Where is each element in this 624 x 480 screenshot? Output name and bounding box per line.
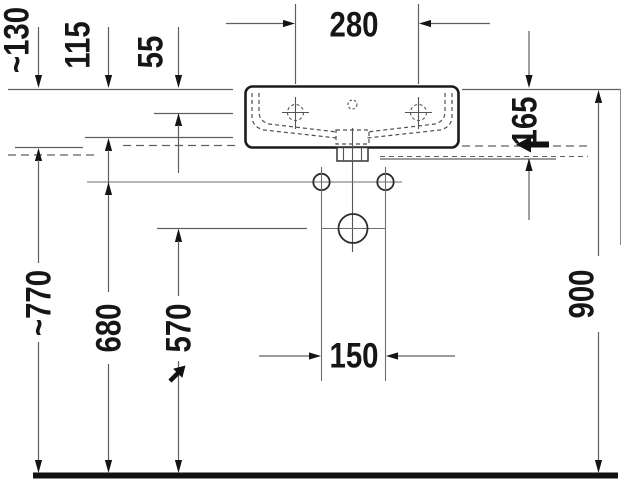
arrowhead bbox=[175, 460, 182, 473]
arrowhead bbox=[105, 75, 112, 88]
arrowhead bbox=[283, 20, 295, 27]
adjustment-direction-ne-arrow bbox=[165, 361, 190, 386]
arrowhead bbox=[35, 460, 42, 473]
label-280: 280 bbox=[329, 5, 378, 44]
waste-connection bbox=[157, 214, 385, 243]
arrowhead bbox=[595, 90, 602, 103]
dimension-570 bbox=[175, 113, 182, 473]
drawing-canvas: ~130 115 55 280 165 900 ~770 680 570 150 bbox=[0, 0, 624, 480]
arrowhead bbox=[35, 75, 42, 88]
arrowhead bbox=[525, 158, 532, 171]
arrowhead bbox=[525, 75, 532, 88]
floor-line bbox=[33, 473, 618, 479]
label-900: 900 bbox=[562, 269, 601, 318]
label-570: 570 bbox=[159, 303, 198, 352]
arrowhead bbox=[105, 182, 112, 195]
arrowhead bbox=[105, 138, 112, 151]
arrowhead bbox=[175, 229, 182, 243]
arrowhead bbox=[386, 352, 398, 359]
label-165: 165 bbox=[505, 96, 544, 145]
left-reference-lines bbox=[8, 114, 236, 156]
label-55: 55 bbox=[131, 36, 170, 69]
label-770: ~770 bbox=[19, 270, 58, 336]
label-150: 150 bbox=[329, 336, 378, 375]
arrowhead bbox=[309, 352, 321, 359]
arrowhead bbox=[105, 460, 112, 473]
arrowhead bbox=[595, 460, 602, 473]
label-130: ~130 bbox=[0, 7, 36, 73]
dimension-labels: ~130 115 55 280 165 900 ~770 680 570 150 bbox=[0, 5, 601, 375]
technical-drawing: ~130 115 55 280 165 900 ~770 680 570 150 bbox=[0, 0, 624, 480]
label-115: 115 bbox=[58, 21, 97, 68]
arrowhead bbox=[175, 113, 182, 126]
washbasin bbox=[246, 87, 459, 253]
arrowhead bbox=[419, 20, 431, 27]
arrowhead bbox=[175, 75, 182, 88]
label-680: 680 bbox=[89, 303, 128, 352]
